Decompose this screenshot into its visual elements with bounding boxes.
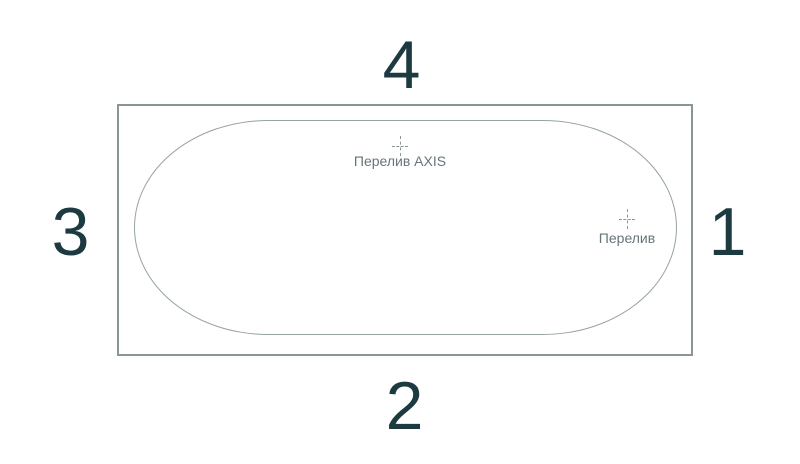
side-number-bottom: 2 — [386, 372, 423, 440]
overflow-axis-label: Перелив AXIS — [354, 154, 446, 169]
bathtub-diagram-canvas: 4 2 3 1 Перелив AXIS Перелив — [0, 0, 800, 464]
crosshair-horizontal-line — [619, 219, 635, 220]
side-number-left: 3 — [52, 198, 89, 266]
overflow-label: Перелив — [599, 231, 655, 246]
side-number-right: 1 — [709, 198, 746, 266]
crosshair-horizontal-line — [392, 146, 408, 147]
crosshair-icon — [617, 209, 637, 229]
side-number-top: 4 — [383, 31, 420, 99]
